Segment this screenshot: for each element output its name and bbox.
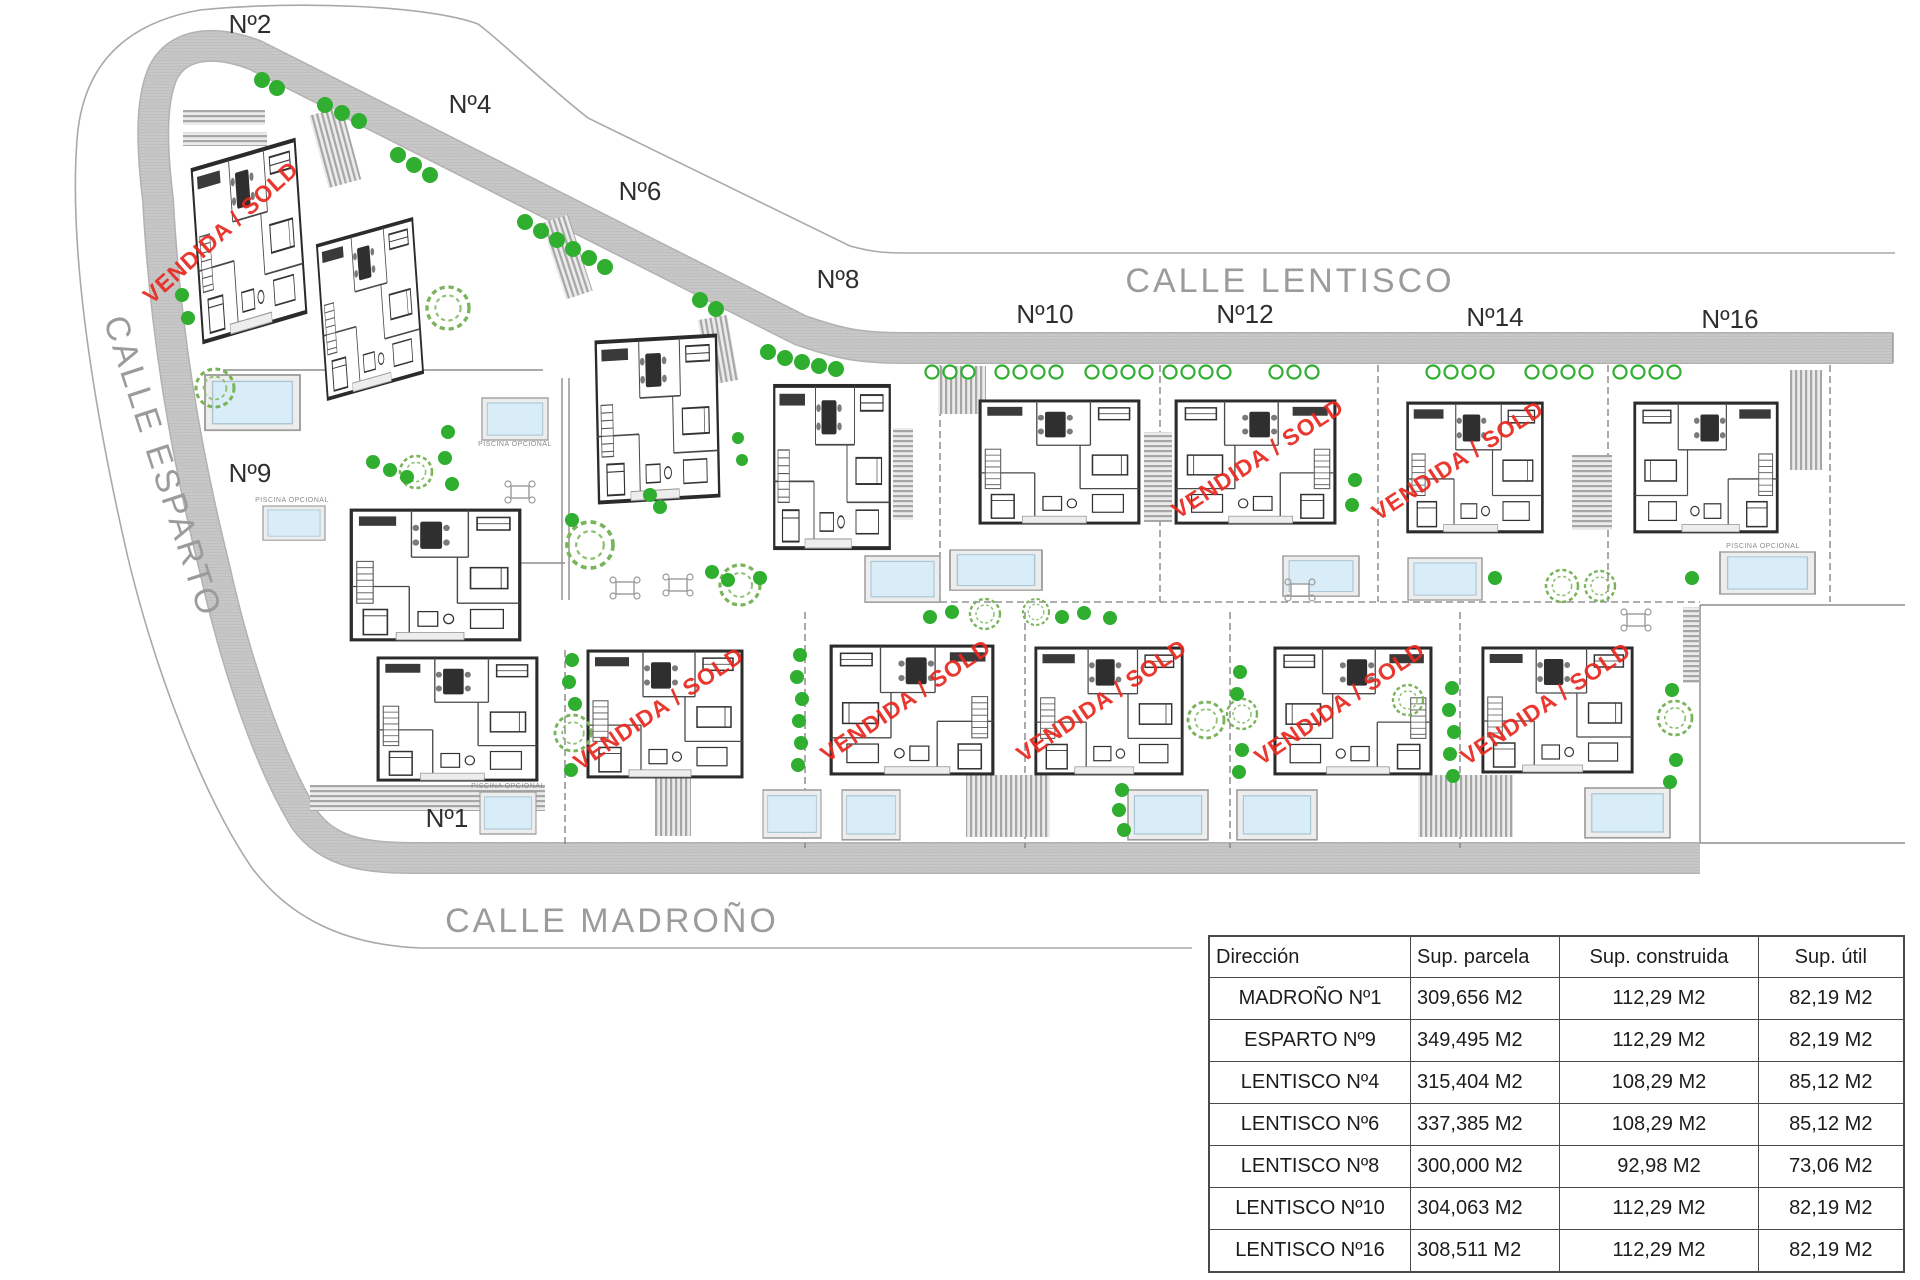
villas bbox=[192, 140, 1778, 780]
cell-util: 82,19 M2 bbox=[1758, 1188, 1904, 1230]
pool-n14 bbox=[1408, 558, 1482, 600]
surface-table: Dirección Sup. parcela Sup. construida S… bbox=[1208, 935, 1905, 1273]
plot-label-n9: Nº9 bbox=[229, 458, 272, 488]
plot-label-n6: Nº6 bbox=[619, 176, 662, 206]
cell-construida: 108,29 M2 bbox=[1560, 1104, 1758, 1146]
pool-n2 bbox=[205, 375, 300, 430]
villa-floorplan-n1 bbox=[378, 658, 537, 780]
street-label-lentisco: CALLE LENTISCO bbox=[1125, 262, 1454, 300]
table-row: LENTISCO Nº4 315,404 M2 108,29 M2 85,12 … bbox=[1209, 1062, 1904, 1104]
pool-n16 bbox=[1720, 552, 1815, 594]
plot-label-n14: Nº14 bbox=[1466, 302, 1523, 332]
cell-parcela: 349,495 M2 bbox=[1411, 1020, 1560, 1062]
cell-parcela: 304,063 M2 bbox=[1411, 1188, 1560, 1230]
villa-floorplan-n8 bbox=[774, 386, 890, 548]
col-header-sup-parcela: Sup. parcela bbox=[1411, 936, 1560, 978]
villa-floorplan-n16 bbox=[1635, 403, 1777, 532]
pool-n1 bbox=[480, 792, 536, 834]
pool-madrono-3 bbox=[842, 790, 900, 840]
cell-parcela: 300,000 M2 bbox=[1411, 1146, 1560, 1188]
villa-floorplan-n6 bbox=[596, 335, 720, 502]
pool-madrono-5 bbox=[1237, 790, 1317, 840]
col-header-sup-construida: Sup. construida bbox=[1560, 936, 1758, 978]
pool-caption: PISCINA OPCIONAL bbox=[471, 783, 545, 790]
cell-direccion: LENTISCO Nº8 bbox=[1209, 1146, 1411, 1188]
cell-util: 85,12 M2 bbox=[1758, 1062, 1904, 1104]
cell-construida: 112,29 M2 bbox=[1560, 1020, 1758, 1062]
pool-n10 bbox=[950, 550, 1042, 590]
cell-util: 82,19 M2 bbox=[1758, 1230, 1904, 1272]
plot-label-n12: Nº12 bbox=[1216, 299, 1273, 329]
table-row: LENTISCO Nº16 308,511 M2 112,29 M2 82,19… bbox=[1209, 1230, 1904, 1272]
table-row: LENTISCO Nº10 304,063 M2 112,29 M2 82,19… bbox=[1209, 1188, 1904, 1230]
table-row: LENTISCO Nº6 337,385 M2 108,29 M2 85,12 … bbox=[1209, 1104, 1904, 1146]
cell-construida: 92,98 M2 bbox=[1560, 1146, 1758, 1188]
cell-direccion: LENTISCO Nº6 bbox=[1209, 1104, 1411, 1146]
table-row: LENTISCO Nº8 300,000 M2 92,98 M2 73,06 M… bbox=[1209, 1146, 1904, 1188]
col-header-sup-util: Sup. útil bbox=[1758, 936, 1904, 978]
cell-direccion: MADROÑO Nº1 bbox=[1209, 978, 1411, 1020]
plot-label-n10: Nº10 bbox=[1016, 299, 1073, 329]
cell-construida: 112,29 M2 bbox=[1560, 978, 1758, 1020]
pool-caption: PISCINA OPCIONAL bbox=[1726, 543, 1800, 550]
cell-parcela: 315,404 M2 bbox=[1411, 1062, 1560, 1104]
hedge-rings bbox=[926, 366, 1681, 379]
villa-floorplan-n10 bbox=[980, 401, 1139, 523]
cell-util: 82,19 M2 bbox=[1758, 978, 1904, 1020]
table-row: MADROÑO Nº1 309,656 M2 112,29 M2 82,19 M… bbox=[1209, 978, 1904, 1020]
site-plan: PISCINA OPCIONAL PISCINA OPCIONAL PISCIN… bbox=[0, 0, 1920, 1280]
cell-util: 85,12 M2 bbox=[1758, 1104, 1904, 1146]
cell-direccion: LENTISCO Nº16 bbox=[1209, 1230, 1411, 1272]
table-header-row: Dirección Sup. parcela Sup. construida S… bbox=[1209, 936, 1904, 978]
plot-label-n16: Nº16 bbox=[1701, 304, 1758, 334]
cell-direccion: LENTISCO Nº4 bbox=[1209, 1062, 1411, 1104]
pool-caption: PISCINA OPCIONAL bbox=[255, 497, 329, 504]
villa-floorplan-n9 bbox=[351, 510, 519, 640]
pool-n4 bbox=[482, 398, 548, 440]
col-header-direccion: Dirección bbox=[1209, 936, 1411, 978]
cell-parcela: 308,511 M2 bbox=[1411, 1230, 1560, 1272]
street-label-madrono: CALLE MADROÑO bbox=[445, 902, 779, 940]
cell-direccion: LENTISCO Nº10 bbox=[1209, 1188, 1411, 1230]
cell-construida: 108,29 M2 bbox=[1560, 1062, 1758, 1104]
plot-label-n1: Nº1 bbox=[426, 803, 469, 833]
pool-n8 bbox=[865, 556, 940, 602]
pool-madrono-4 bbox=[1128, 790, 1208, 840]
villa-floorplan-n4 bbox=[317, 219, 423, 399]
table-row: ESPARTO Nº9 349,495 M2 112,29 M2 82,19 M… bbox=[1209, 1020, 1904, 1062]
pool-madrono-6 bbox=[1585, 788, 1670, 838]
cell-parcela: 337,385 M2 bbox=[1411, 1104, 1560, 1146]
cell-construida: 112,29 M2 bbox=[1560, 1230, 1758, 1272]
pool-caption: PISCINA OPCIONAL bbox=[478, 441, 552, 448]
cell-util: 82,19 M2 bbox=[1758, 1020, 1904, 1062]
cell-parcela: 309,656 M2 bbox=[1411, 978, 1560, 1020]
plot-label-n8: Nº8 bbox=[817, 264, 860, 294]
plot-label-n2: Nº2 bbox=[229, 9, 272, 39]
plot-label-n4: Nº4 bbox=[449, 89, 492, 119]
pool-n9-small bbox=[263, 506, 325, 540]
pool-madrono-2 bbox=[763, 790, 821, 838]
cell-direccion: ESPARTO Nº9 bbox=[1209, 1020, 1411, 1062]
cell-util: 73,06 M2 bbox=[1758, 1146, 1904, 1188]
cell-construida: 112,29 M2 bbox=[1560, 1188, 1758, 1230]
